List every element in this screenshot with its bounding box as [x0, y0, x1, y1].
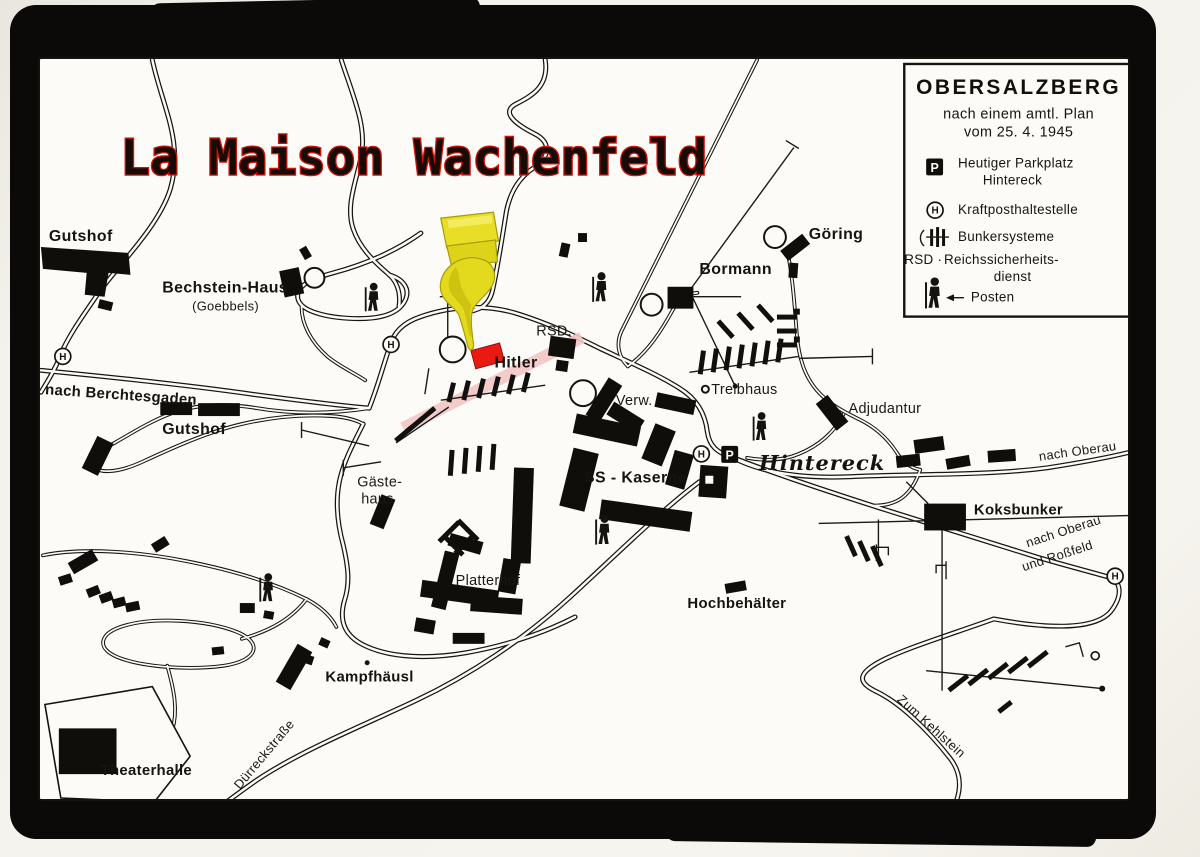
label-theaterhalle: Theaterhalle [101, 763, 192, 779]
legend-rsd-1: Reichssicherheits- [944, 252, 1059, 267]
label-duerreckstrasse: Dürreckstraße [231, 717, 298, 792]
label-bormann: Bormann [699, 261, 772, 278]
h-symbol: H [1112, 572, 1119, 583]
p-symbol: P [726, 448, 734, 462]
label-gutshof-s: Gutshof [162, 421, 226, 438]
h-symbol: H [387, 340, 394, 351]
obersalzberg-map: H H H H P Gutshof Bechstein-Haus (Goebbe… [40, 59, 1128, 799]
label-gaestehaus-1: Gäste- [357, 475, 402, 491]
svg-text:H: H [932, 206, 939, 217]
parking-symbol: P [721, 446, 738, 463]
map-paper: H H H H P Gutshof Bechstein-Haus (Goebbe… [38, 57, 1130, 801]
label-treibhaus: Treibhaus [711, 382, 777, 398]
label-bechstein-haus: Bechstein-Haus [162, 280, 288, 297]
label-koksbunker: Koksbunker [974, 503, 1063, 519]
legend-subtitle-1: nach einem amtl. Plan [943, 107, 1094, 123]
legend-kraftpost: Kraftposthaltestelle [958, 202, 1078, 217]
label-verw: Verw. [616, 393, 653, 409]
legend-rsd-2: dienst [994, 269, 1032, 284]
label-gutshof-nw: Gutshof [49, 228, 113, 245]
h-symbol: H [59, 352, 66, 363]
label-goering: Göring [809, 226, 864, 243]
legend-parkplatz-1: Heutiger Parkplatz [958, 155, 1074, 170]
pointer-hand-icon [440, 212, 498, 350]
legend-box: OBERSALZBERG nach einem amtl. Plan vom 2… [904, 64, 1128, 317]
page-title: La Maison Wachenfeld [121, 130, 708, 186]
label-goebbels: (Goebbels) [192, 299, 259, 314]
label-kampfhaeusl: Kampfhäusl [325, 670, 413, 686]
label-ss-kaserne: SS - Kaserne [584, 470, 687, 487]
legend-rsd-prefix: RSD · [904, 252, 942, 267]
label-hochbehaelter: Hochbehälter [687, 596, 786, 612]
svg-text:P: P [930, 161, 938, 175]
label-hintereck: Hintereck [758, 450, 885, 475]
label-rsd: RSD. [536, 324, 572, 340]
h-symbol: H [698, 449, 705, 460]
label-hitler: Hitler [494, 354, 537, 371]
legend-bunker: Bunkersysteme [958, 229, 1054, 244]
label-gaestehaus-2: haus [361, 492, 393, 508]
label-platterhof: Platterhof [456, 573, 521, 589]
legend-posten: Posten [971, 290, 1015, 305]
legend-subtitle-2: vom 25. 4. 1945 [964, 125, 1073, 141]
postcard-photo: H H H H P Gutshof Bechstein-Haus (Goebbe… [0, 0, 1200, 857]
label-adjudantur: Adjudantur [849, 401, 922, 417]
legend-heading: OBERSALZBERG [916, 76, 1121, 99]
legend-parkplatz-2: Hintereck [983, 172, 1042, 187]
label-zum-kehlstein: Zum Kehlstein [894, 692, 968, 761]
